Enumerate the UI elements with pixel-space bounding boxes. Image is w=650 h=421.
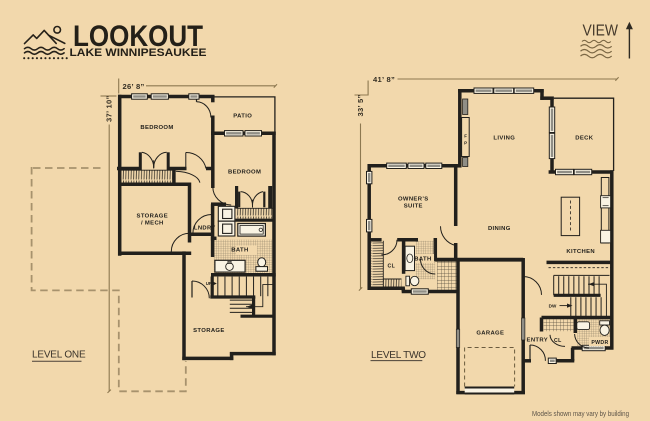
- svg-text:GARAGE: GARAGE: [476, 331, 504, 337]
- svg-text:CL: CL: [387, 264, 395, 270]
- svg-text:DINING: DINING: [488, 226, 511, 232]
- svg-text:26’ 8”: 26’ 8”: [123, 82, 145, 91]
- svg-text:STORAGE: STORAGE: [137, 213, 168, 219]
- svg-text:PATIO: PATIO: [233, 114, 252, 120]
- svg-text:STORAGE: STORAGE: [193, 328, 224, 334]
- svg-text:SUITE: SUITE: [404, 204, 423, 210]
- svg-text:33’ 5”: 33’ 5”: [356, 94, 365, 116]
- svg-text:PWDR: PWDR: [591, 340, 608, 346]
- svg-text:Models shown may vary by build: Models shown may vary by building: [532, 411, 629, 418]
- svg-text:DW: DW: [549, 303, 557, 308]
- svg-text:BEDROOM: BEDROOM: [228, 170, 261, 176]
- svg-text:P: P: [464, 141, 467, 146]
- svg-text:F: F: [464, 134, 467, 139]
- svg-text:LIVING: LIVING: [493, 135, 515, 141]
- svg-text:LNDRY: LNDRY: [194, 226, 216, 232]
- svg-text:BATH: BATH: [414, 257, 431, 263]
- svg-text:OWNER’S: OWNER’S: [398, 196, 429, 202]
- svg-text:LEVEL TWO: LEVEL TWO: [371, 350, 426, 361]
- svg-text:UP: UP: [206, 281, 212, 286]
- svg-text:37’ 10”: 37’ 10”: [105, 95, 114, 122]
- svg-text:/ MECH: / MECH: [141, 221, 164, 227]
- svg-text:KITCHEN: KITCHEN: [566, 249, 595, 255]
- svg-text:VIEW: VIEW: [583, 22, 619, 39]
- svg-text:DECK: DECK: [575, 136, 593, 142]
- svg-text:BATH: BATH: [231, 248, 248, 254]
- svg-text:LEVEL ONE: LEVEL ONE: [32, 350, 86, 361]
- svg-text:41’ 8”: 41’ 8”: [373, 75, 395, 84]
- svg-text:BEDROOM: BEDROOM: [140, 125, 173, 131]
- svg-text:ENTRY: ENTRY: [527, 337, 549, 343]
- svg-text:CL: CL: [554, 338, 562, 344]
- svg-text:LAKE WINNIPESAUKEE: LAKE WINNIPESAUKEE: [70, 47, 207, 59]
